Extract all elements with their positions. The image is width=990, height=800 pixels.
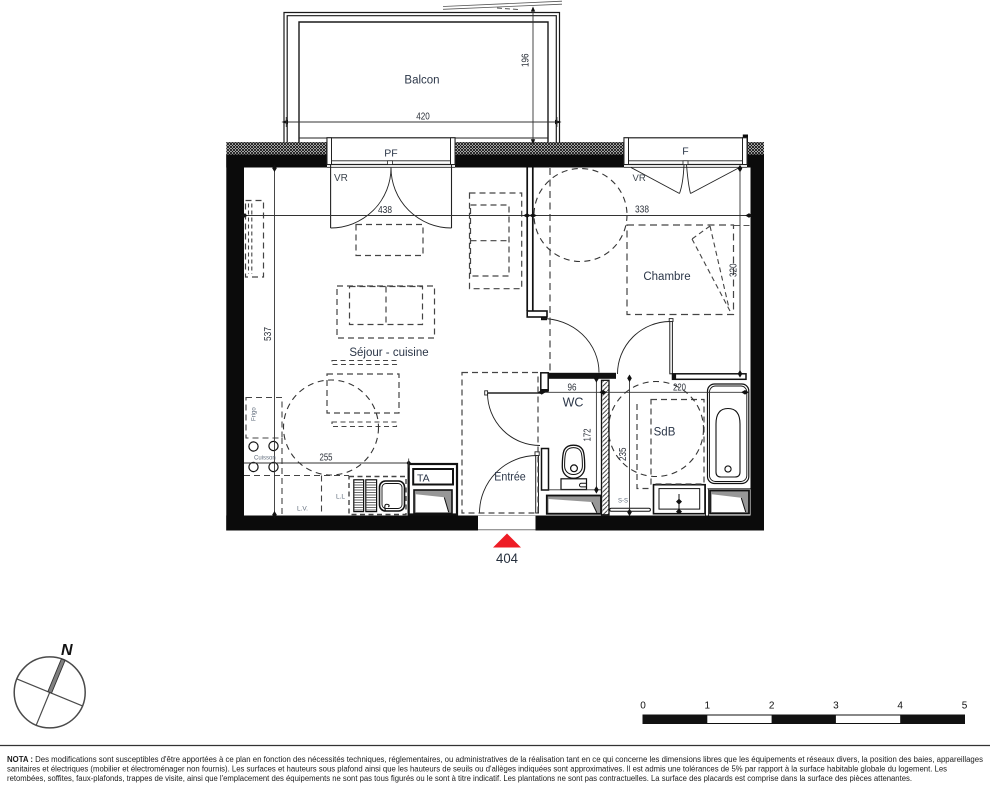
svg-text:TA: TA xyxy=(417,473,430,485)
svg-text:sanitaires et électriques (mob: sanitaires et électriques (mobilier et é… xyxy=(7,765,947,774)
svg-text:retombées, soffites, faux-plaf: retombées, soffites, faux-plafonds, trap… xyxy=(7,774,912,783)
svg-text:Balcon: Balcon xyxy=(404,75,439,87)
svg-text:VR: VR xyxy=(334,173,348,184)
svg-text:0: 0 xyxy=(640,701,646,712)
svg-text:SdB: SdB xyxy=(654,427,676,439)
svg-text:L.V.: L.V. xyxy=(297,506,308,513)
svg-text:537: 537 xyxy=(263,327,274,341)
svg-text:196: 196 xyxy=(521,53,532,67)
svg-text:420: 420 xyxy=(416,112,430,123)
svg-text:NOTA : Des modifications sont: NOTA : Des modifications sont susceptibl… xyxy=(7,755,983,764)
svg-text:VR: VR xyxy=(633,173,646,184)
svg-text:235: 235 xyxy=(618,447,629,461)
svg-text:3: 3 xyxy=(833,701,839,712)
svg-text:F: F xyxy=(682,146,688,158)
svg-text:Frigo: Frigo xyxy=(252,407,258,421)
svg-text:255: 255 xyxy=(320,453,333,464)
svg-text:96: 96 xyxy=(568,383,577,394)
svg-text:Séjour - cuisine: Séjour - cuisine xyxy=(349,347,428,359)
svg-text:WC: WC xyxy=(563,396,584,410)
svg-text:Chambre: Chambre xyxy=(643,271,690,283)
svg-text:2: 2 xyxy=(769,701,775,712)
svg-text:4: 4 xyxy=(897,701,903,712)
svg-text:220: 220 xyxy=(673,383,686,394)
svg-text:Entrée: Entrée xyxy=(494,472,526,484)
svg-text:S-S: S-S xyxy=(618,499,628,505)
svg-text:L.L: L.L xyxy=(336,494,345,501)
svg-text:5: 5 xyxy=(962,701,968,712)
svg-text:1: 1 xyxy=(705,701,711,712)
svg-text:172: 172 xyxy=(583,428,594,441)
svg-text:320: 320 xyxy=(729,263,740,277)
svg-text:404: 404 xyxy=(496,551,518,566)
svg-text:N: N xyxy=(61,642,73,659)
svg-text:338: 338 xyxy=(635,205,649,216)
svg-text:438: 438 xyxy=(378,205,392,216)
svg-text:PF: PF xyxy=(384,148,397,160)
svg-text:Cuisson: Cuisson xyxy=(254,456,276,462)
